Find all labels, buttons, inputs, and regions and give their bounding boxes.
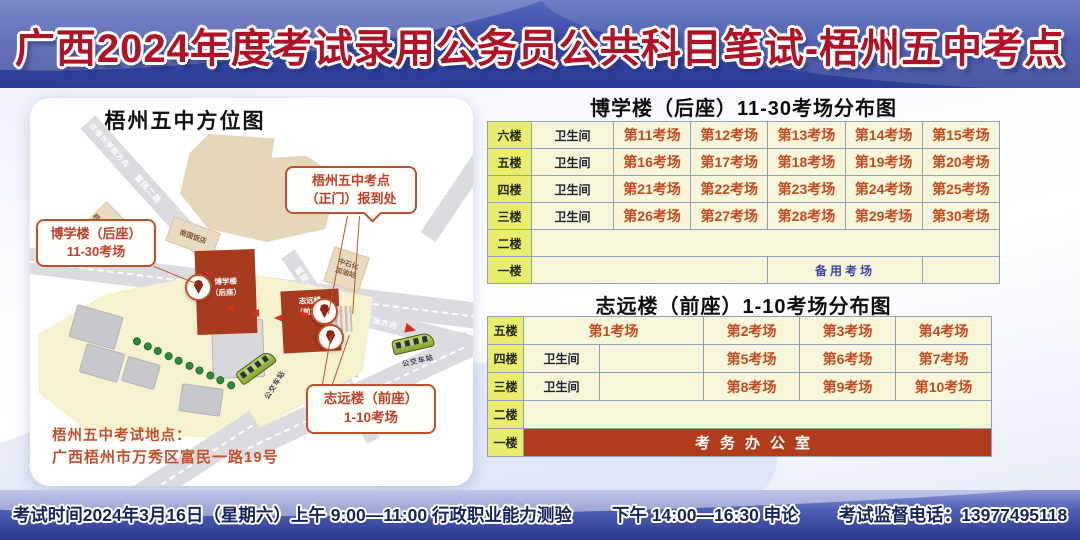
floor-label: 四楼: [488, 176, 532, 203]
exam-address-line2: 广西梧州市万秀区富民一路19号: [52, 446, 279, 467]
supervision-phone: 考试监督电话：13977495118: [839, 502, 1068, 527]
table-row: 二楼: [488, 401, 992, 429]
empty-cell: [600, 345, 704, 373]
exam-time-morning: 考试时间2024年3月16日（星期六）上午 9:00—11:00 行政职业能力测…: [13, 502, 572, 527]
exam-office-cell: 考务办公室: [524, 429, 992, 457]
main-area: 梧州五中方位图 往梧州学院方向 富民二路 富民一路 往骑楼城广场方向 西环路: [0, 88, 1080, 490]
exam-room-cell: 第17考场: [691, 149, 768, 176]
checkin-callout-line1: 梧州五中考点: [291, 172, 411, 190]
exam-room-cell: 第2考场: [704, 317, 800, 345]
table-row: 六楼 卫生间 第11考场 第12考场 第13考场 第14考场 第15考场: [488, 122, 1000, 149]
map-title: 梧州五中方位图: [60, 105, 310, 135]
exam-room-cell: 第29考场: [845, 203, 922, 230]
boxue-callout-line2: 11-30考场: [42, 243, 150, 261]
floor-label: 四楼: [488, 345, 524, 373]
restroom-cell: 卫生间: [524, 373, 600, 401]
table-row: 四楼 卫生间 第5考场 第6考场 第7考场: [488, 345, 992, 373]
campus-building-gray: [178, 383, 223, 417]
exam-room-cell: 第15考场: [922, 122, 999, 149]
boxue-table: 六楼 卫生间 第11考场 第12考场 第13考场 第14考场 第15考场 五楼 …: [487, 121, 1000, 284]
exam-room-cell: 第8考场: [704, 373, 800, 401]
exam-room-cell: 第10考场: [895, 373, 991, 401]
header-banner: 广西2024年度考试录用公务员公共科目笔试-梧州五中考点: [0, 0, 1080, 88]
boxue-marker: [185, 274, 212, 301]
empty-cell: [532, 230, 1000, 257]
table-row: 三楼 卫生间 第8考场 第9考场 第10考场: [488, 373, 992, 401]
exam-site-poster: 广西2024年度考试录用公务员公共科目笔试-梧州五中考点 梧州五中方位图 往梧州…: [0, 0, 1080, 540]
exam-room-cell: 第19考场: [845, 149, 922, 176]
floor-label: 六楼: [488, 122, 532, 149]
floor-label: 二楼: [488, 230, 532, 257]
restroom-cell: 卫生间: [532, 149, 614, 176]
direction-arrow-icon: [404, 323, 417, 335]
road-upper-right: [421, 132, 473, 242]
exam-room-cell: 第30考场: [922, 203, 999, 230]
exam-room-cell: 第24考场: [845, 176, 922, 203]
table-row: 五楼 卫生间 第16考场 第17考场 第18考场 第19考场 第20考场: [488, 149, 1000, 176]
location-map-panel: 梧州五中方位图 往梧州学院方向 富民二路 富民一路 往骑楼城广场方向 西环路: [30, 98, 473, 486]
exam-room-cell: 第7考场: [895, 345, 991, 373]
exam-room-cell: 第11考场: [614, 122, 691, 149]
table-row: 二楼: [488, 230, 1000, 257]
table-row: 一楼 备用考场: [488, 257, 1000, 284]
floor-label: 一楼: [488, 429, 524, 457]
table-row: 四楼 卫生间 第21考场 第22考场 第23考场 第24考场 第25考场: [488, 176, 1000, 203]
zhiyuan-callout: 志远楼（前座） 1-10考场: [306, 384, 436, 434]
empty-cell: [922, 257, 999, 284]
empty-cell: [524, 401, 992, 429]
exam-room-cell: 第12考场: [691, 122, 768, 149]
floor-label: 三楼: [488, 203, 532, 230]
checkin-callout-line2: （正门）报到处: [291, 190, 411, 208]
empty-cell: [600, 373, 704, 401]
exam-room-cell: 第5考场: [704, 345, 800, 373]
restroom-cell: 卫生间: [532, 122, 614, 149]
path-arrow-icon: [250, 309, 259, 317]
restroom-cell: 卫生间: [524, 345, 600, 373]
table-row: 三楼 卫生间 第26考场 第27考场 第28考场 第29考场 第30考场: [488, 203, 1000, 230]
exam-room-cell: 第26考场: [614, 203, 691, 230]
exam-room-cell: 第3考场: [800, 317, 896, 345]
empty-cell: [532, 257, 768, 284]
restroom-cell: 卫生间: [532, 176, 614, 203]
exam-room-cell: 第27考场: [691, 203, 768, 230]
floor-label: 五楼: [488, 149, 532, 176]
restroom-cell: 卫生间: [532, 203, 614, 230]
footer-banner: 考试时间2024年3月16日（星期六）上午 9:00—11:00 行政职业能力测…: [0, 490, 1080, 540]
exam-room-cell: 第4考场: [895, 317, 991, 345]
boxue-callout: 博学楼（后座） 11-30考场: [36, 219, 156, 267]
path-arrow-icon: [226, 304, 235, 312]
exam-room-cell: 第16考场: [614, 149, 691, 176]
floor-label: 五楼: [488, 317, 524, 345]
table-row: 五楼 第1考场 第2考场 第3考场 第4考场: [488, 317, 992, 345]
floor-label: 一楼: [488, 257, 532, 284]
boxue-callout-line1: 博学楼（后座）: [42, 225, 150, 243]
zhiyuan-table: 五楼 第1考场 第2考场 第3考场 第4考场 四楼 卫生间 第5考场 第6考场 …: [487, 316, 992, 457]
exam-room-cell: 第21考场: [614, 176, 691, 203]
gate-marker: [311, 298, 338, 325]
bus-windows: [395, 335, 429, 348]
poster-title: 广西2024年度考试录用公务员公共科目笔试-梧州五中考点: [0, 16, 1080, 74]
exam-room-cell: 第6考场: [800, 345, 896, 373]
exam-room-cell: 第20考场: [922, 149, 999, 176]
footer-info: 考试时间2024年3月16日（星期六）上午 9:00—11:00 行政职业能力测…: [0, 502, 1080, 527]
exam-room-cell: 第28考场: [768, 203, 845, 230]
exam-room-cell: 第18考场: [768, 149, 845, 176]
exam-room-cell: 第1考场: [524, 317, 704, 345]
floor-label: 二楼: [488, 401, 524, 429]
exam-room-cell: 第22考场: [691, 176, 768, 203]
backup-room-cell: 备用考场: [768, 257, 922, 284]
exam-room-cell: 第9考场: [800, 373, 896, 401]
zhiyuan-table-title: 志远楼（前座）1-10考场分布图: [487, 290, 1000, 319]
road-label-fumin-2nd: 富民二路: [132, 172, 164, 206]
path-arrow-icon: [274, 314, 283, 322]
exam-room-cell: 第23考场: [768, 176, 845, 203]
zhiyuan-callout-line1: 志远楼（前座）: [312, 390, 430, 409]
exam-room-cell: 第14考场: [845, 122, 922, 149]
floor-label: 三楼: [488, 373, 524, 401]
exam-address-line1: 梧州五中考试地点：: [52, 424, 192, 445]
boxue-table-title: 博学楼（后座）11-30考场分布图: [487, 92, 1000, 121]
exam-time-afternoon: 下午 14:00—16:30 申论: [612, 502, 799, 527]
zhiyuan-callout-line2: 1-10考场: [312, 409, 430, 428]
checkin-callout: 梧州五中考点 （正门）报到处: [285, 166, 417, 214]
exam-room-cell: 第13考场: [768, 122, 845, 149]
table-row: 一楼 考务办公室: [488, 429, 992, 457]
exam-room-cell: 第25考场: [922, 176, 999, 203]
